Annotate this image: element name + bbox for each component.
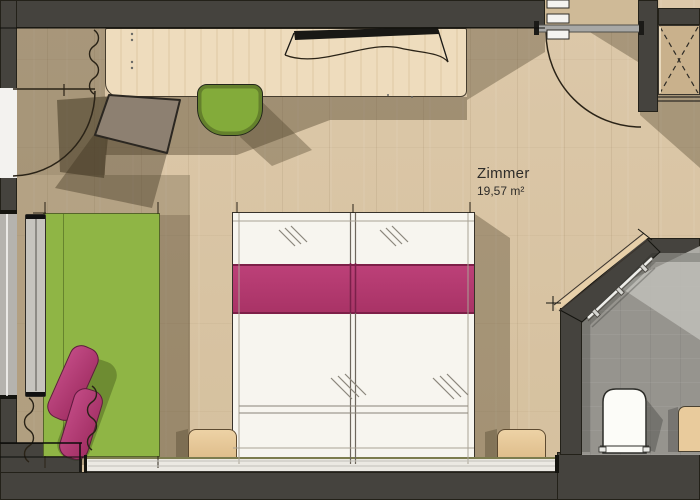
floor-plan: Zimmer 19,57 m² (0, 0, 700, 500)
bed-lines (233, 202, 474, 464)
room-label: Zimmer 19,57 m² (477, 165, 530, 199)
linen-hatches (279, 226, 468, 399)
entrance-door (534, 0, 644, 127)
insulation-squiggles (25, 30, 99, 462)
room-area: 19,57 m² (477, 184, 530, 199)
room-name: Zimmer (477, 165, 530, 184)
toilet (599, 389, 678, 453)
desk-dots (131, 33, 413, 98)
left-door-swing (13, 84, 95, 176)
office-chair (95, 95, 180, 153)
dimension-ticks (33, 202, 158, 468)
tv (285, 27, 448, 62)
wardrobe-symbol (658, 27, 700, 101)
plan-linework (0, 0, 700, 500)
